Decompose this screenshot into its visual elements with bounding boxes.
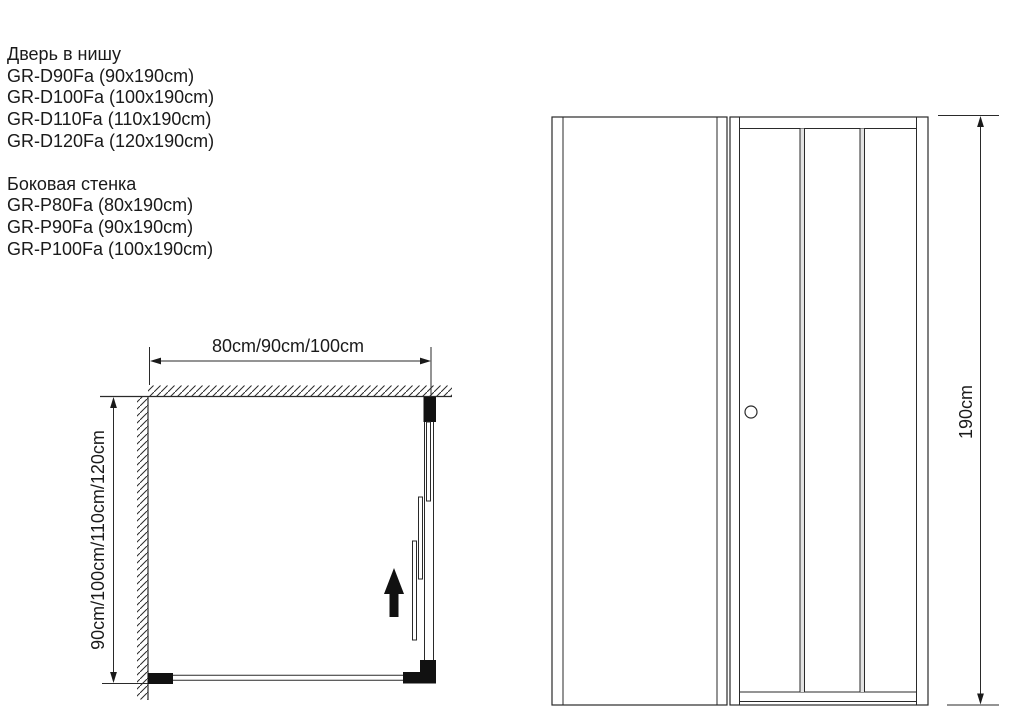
arrow-head — [384, 568, 404, 594]
mullion-fill — [860, 129, 865, 693]
plan-width-dimension-label: 80cm/90cm/100cm — [212, 336, 364, 356]
front-height-dimension: 190cm — [938, 116, 999, 706]
plan-view: 80cm/90cm/100cm 90cm/100cm/110cm/120cm — [88, 336, 452, 700]
drawing-svg: 80cm/90cm/100cm 90cm/100cm/110cm/120cm — [0, 0, 1010, 710]
door-outline — [730, 117, 928, 705]
wall-hatch-top — [148, 386, 452, 397]
wall-profile-bottom-left — [148, 673, 173, 684]
sliding-panel-3 — [413, 541, 417, 640]
arrowhead-left-icon — [150, 358, 161, 365]
opening-direction-arrow-icon — [384, 568, 404, 617]
front-height-dimension-label: 190cm — [956, 385, 976, 439]
arrow-stem — [390, 594, 399, 617]
side-wall-plan — [148, 660, 436, 684]
mullion-fill — [800, 129, 805, 693]
door-handle — [745, 406, 757, 418]
technical-drawing-page: Дверь в нишу GR-D90Fa (90x190cm) GR-D100… — [0, 0, 1010, 710]
arrowhead-up-icon — [110, 397, 117, 408]
side-wall-front — [552, 117, 727, 705]
arrowhead-up-icon — [977, 116, 984, 127]
arrowhead-down-icon — [110, 672, 117, 683]
arrowhead-down-icon — [977, 694, 984, 705]
sliding-door-plan — [384, 397, 436, 660]
wall-profile-top-right — [424, 397, 437, 422]
plan-depth-dimension-label: 90cm/100cm/110cm/120cm — [88, 430, 108, 650]
arrowhead-right-icon — [420, 358, 431, 365]
sliding-panel-1 — [427, 422, 431, 501]
corner-profile-bottom-right — [403, 660, 436, 684]
sliding-panel-2 — [419, 497, 423, 579]
side-wall-outline — [552, 117, 727, 705]
sliding-door-front — [730, 117, 928, 705]
wall-hatch-left — [137, 397, 148, 700]
front-view: 190cm — [552, 116, 999, 706]
niche-walls — [100, 386, 452, 701]
